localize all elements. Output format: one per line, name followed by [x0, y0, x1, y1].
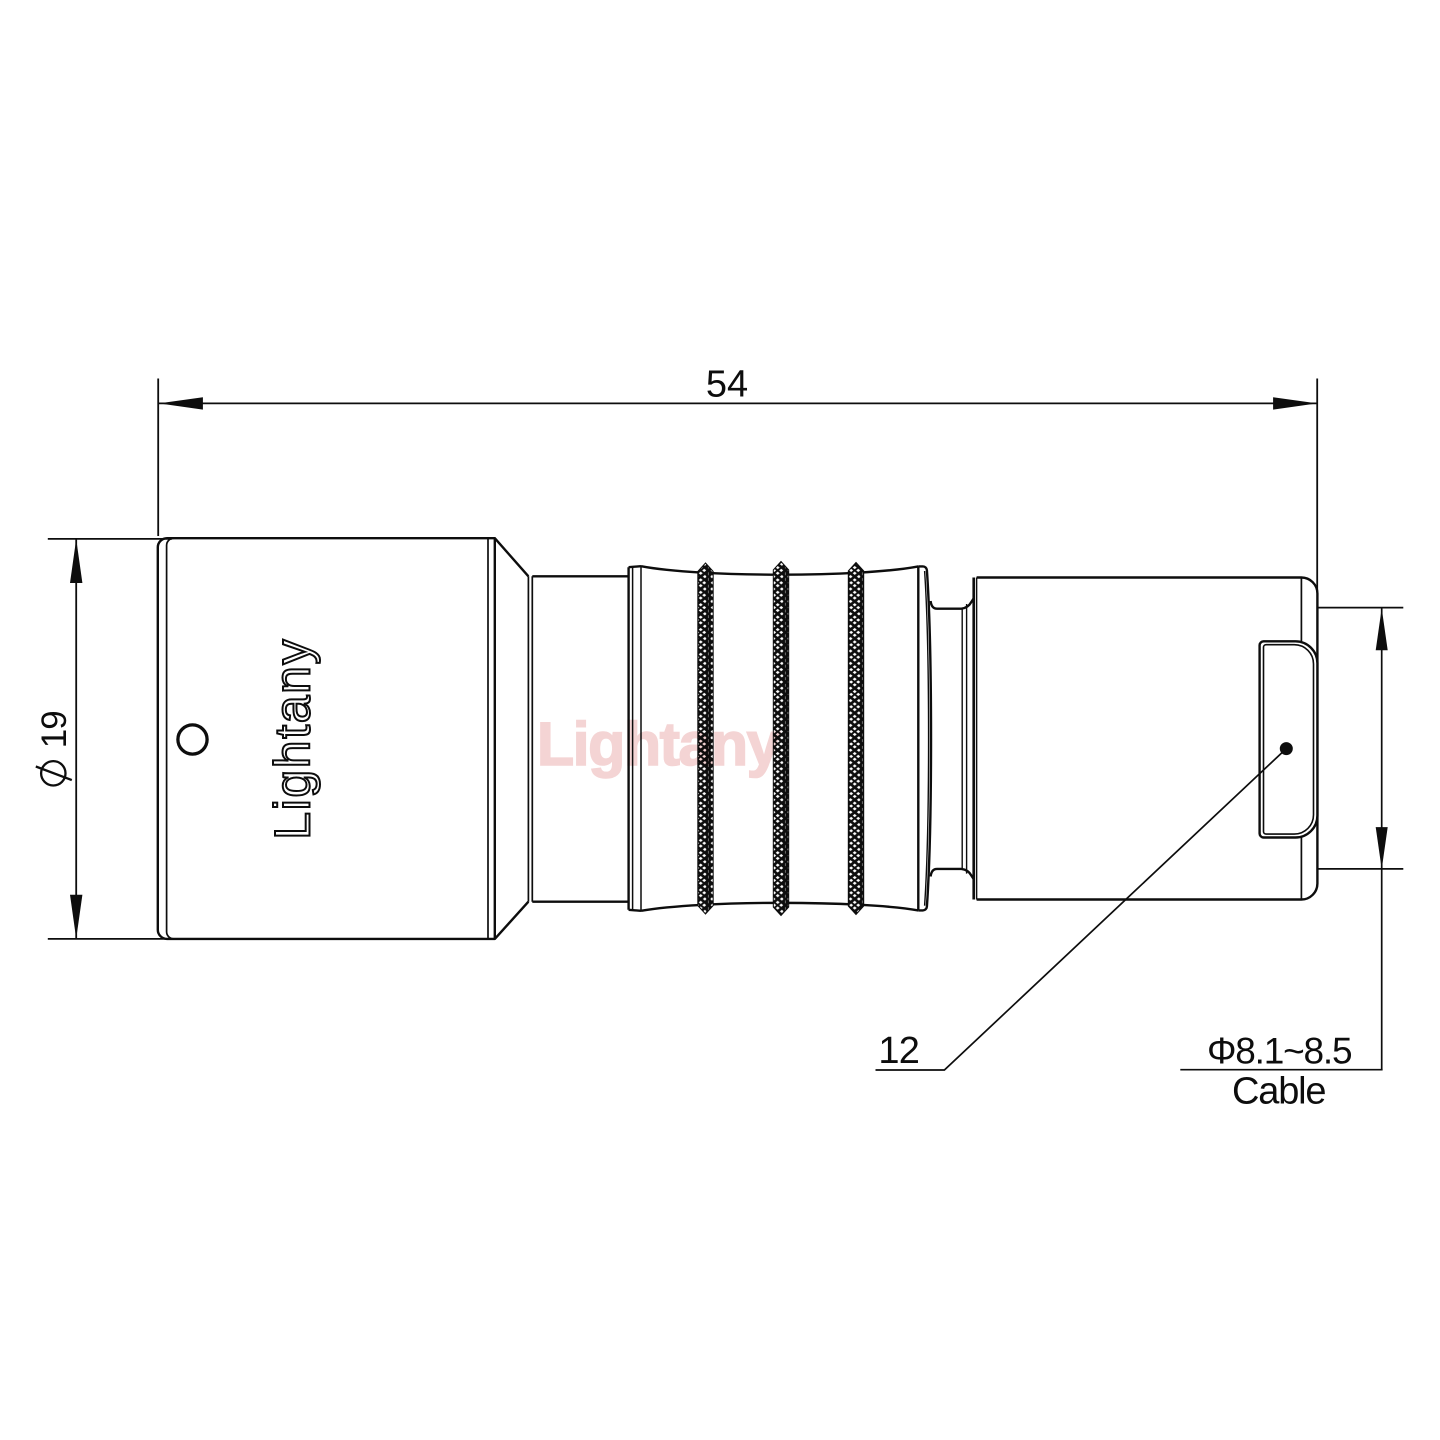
svg-text:12: 12 — [878, 1030, 919, 1072]
svg-text:Cable: Cable — [1232, 1070, 1325, 1112]
svg-text:Lightany: Lightany — [537, 710, 781, 778]
svg-text:Lightany: Lightany — [264, 638, 320, 840]
svg-text:54: 54 — [706, 364, 748, 406]
svg-text:19: 19 — [35, 711, 74, 748]
svg-text:Φ8.1~8.5: Φ8.1~8.5 — [1207, 1030, 1352, 1071]
